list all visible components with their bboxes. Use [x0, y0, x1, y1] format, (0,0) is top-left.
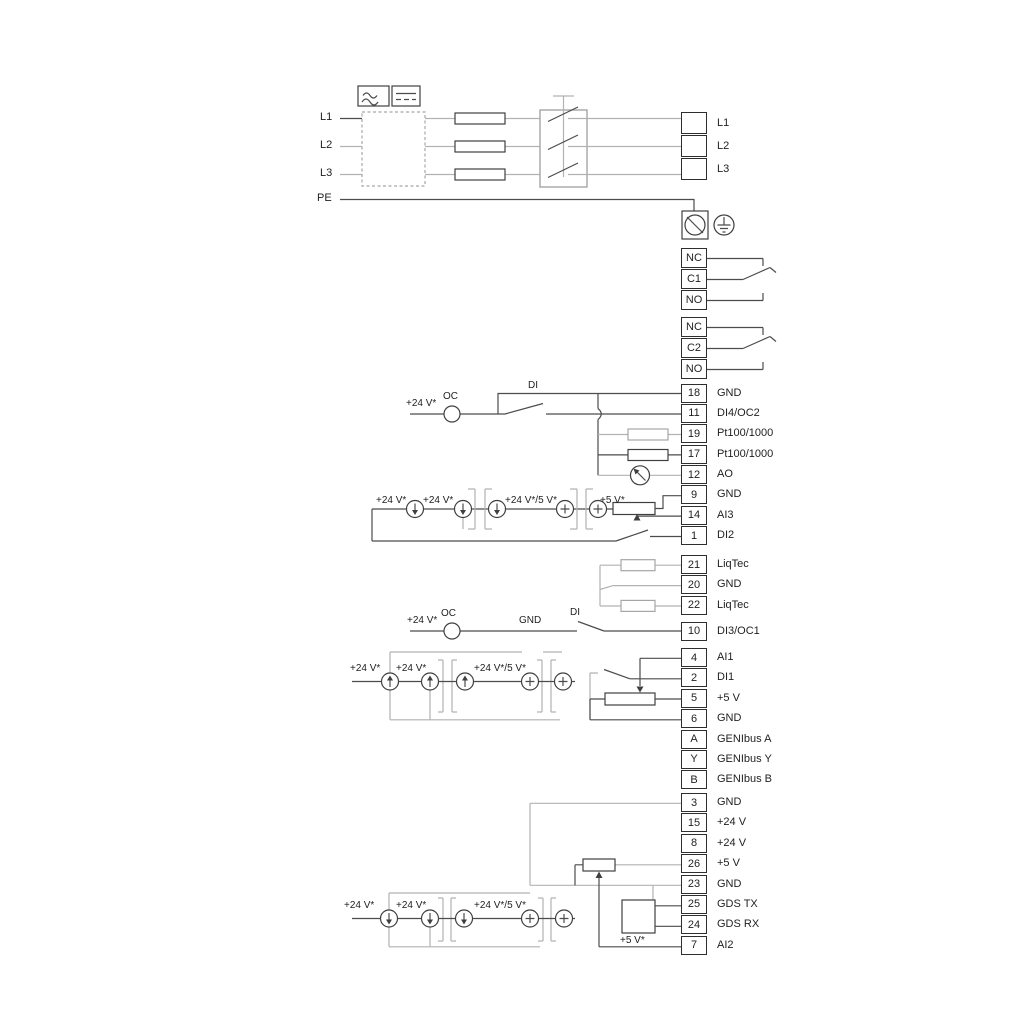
- terminal-label: GND: [717, 575, 741, 594]
- current-source-icon: [422, 673, 439, 690]
- terminal-row: 23 GND: [681, 875, 759, 895]
- terminal-number: A: [681, 730, 707, 749]
- terminal-row: 18 GND: [681, 384, 773, 404]
- terminal-number: 19: [681, 424, 707, 443]
- terminal-label: DI2: [717, 526, 734, 545]
- terminal-number: NC: [681, 317, 707, 337]
- potentiometer-icon: [583, 859, 615, 871]
- terminal-number: 25: [681, 895, 707, 914]
- terminal-label: +5 V: [717, 854, 740, 873]
- power-input-label: L2: [320, 139, 332, 151]
- current-source-icon: [381, 910, 398, 927]
- terminal-number: C1: [681, 269, 707, 289]
- terminal-number: 20: [681, 575, 707, 594]
- current-source-icon: [455, 501, 472, 518]
- terminal-number: 2: [681, 668, 707, 687]
- terminal-number: 4: [681, 648, 707, 667]
- power-input-label: PE: [317, 192, 332, 204]
- terminal-row: 15 +24 V: [681, 813, 759, 833]
- current-source-icon: [522, 673, 539, 690]
- current-source-icon: [382, 673, 399, 690]
- fuse-icon: [455, 113, 505, 124]
- power-input-label: L1: [320, 111, 332, 123]
- terminal-row: C2: [681, 338, 717, 359]
- relay-changeover-contact-icon: [707, 328, 776, 370]
- terminal-label: Pt100/1000: [717, 445, 773, 464]
- terminal-row: 20 GND: [681, 575, 749, 595]
- terminal-row: 2 DI1: [681, 668, 772, 688]
- terminal-label: AI2: [717, 936, 734, 955]
- terminal-number: 7: [681, 936, 707, 955]
- terminal-number: 9: [681, 485, 707, 504]
- open-collector-icon: [444, 623, 460, 639]
- wiring-diagram-canvas: [0, 0, 1024, 1024]
- terminal-number: 21: [681, 555, 707, 574]
- current-source-icon: [407, 501, 424, 518]
- wire-label-24v: +24 V*: [396, 900, 426, 911]
- terminal-strip-mid: 4 AI1 2 DI1 5 +5 V 6 GND A GENIbus A Y G…: [681, 648, 772, 791]
- terminal-number: [681, 158, 707, 180]
- terminal-label: +24 V: [717, 834, 746, 853]
- terminal-number: 8: [681, 834, 707, 853]
- terminal-row: 4 AI1: [681, 648, 772, 668]
- fuses: [425, 113, 540, 180]
- relay-changeover-contact-icon: [707, 259, 776, 301]
- terminal-label: +24 V: [717, 813, 746, 832]
- terminal-row: NC: [681, 248, 717, 269]
- wire-label-di: DI: [528, 380, 538, 391]
- terminal-number: 11: [681, 404, 707, 423]
- gds-sensor-box-icon: [622, 900, 655, 933]
- terminal-label: LiqTec: [717, 555, 749, 574]
- terminal-label: GENIbus B: [717, 770, 772, 789]
- terminal-row: 11 DI4/OC2: [681, 404, 773, 424]
- terminal-row: 14 AI3: [681, 506, 773, 526]
- potentiometer-icon: [605, 693, 655, 705]
- wire-label-5v: +5 V*: [600, 495, 625, 506]
- wiring-diagram: L1 L2 L3 PE L1 L2 L3 NC C1 NO NC C2 NO 1…: [0, 0, 1024, 1024]
- power-input-label: L3: [320, 167, 332, 179]
- wire-label-24v: +24 V*: [407, 615, 437, 626]
- emc-filter-box: [362, 112, 425, 186]
- relay1-block: NC C1 NO: [681, 248, 717, 311]
- terminal-row: Y GENIbus Y: [681, 750, 772, 770]
- terminal-row: 21 LiqTec: [681, 555, 749, 575]
- terminal-number: 14: [681, 506, 707, 525]
- terminal-row: 19 Pt100/1000: [681, 424, 773, 444]
- terminal-row: 3 GND: [681, 793, 759, 813]
- terminal-label: AI3: [717, 506, 734, 525]
- terminal-label: LiqTec: [717, 596, 749, 615]
- terminal-number: 6: [681, 709, 707, 728]
- terminal-row: C1: [681, 269, 717, 290]
- terminal-number: Y: [681, 750, 707, 769]
- wire-label-gnd: GND: [519, 615, 541, 626]
- current-source-icon: [456, 910, 473, 927]
- terminal-row: 10 DI3/OC1: [681, 622, 760, 642]
- terminal-label: DI1: [717, 668, 734, 687]
- terminal-row: 7 AI2: [681, 936, 759, 956]
- terminal-label: GND: [717, 384, 741, 403]
- terminal-row: 8 +24 V: [681, 834, 759, 854]
- power-input-wiring: [340, 112, 694, 211]
- wire-label-24v: +24 V*: [344, 900, 374, 911]
- terminal-number: NO: [681, 359, 707, 379]
- terminal-label: GND: [717, 485, 741, 504]
- digital-input-switch-icon: [604, 670, 681, 679]
- current-source-icon: [557, 501, 574, 518]
- terminal-number: 17: [681, 445, 707, 464]
- terminal-number: NO: [681, 290, 707, 310]
- terminal-number: 10: [681, 622, 707, 641]
- terminal-number: 24: [681, 915, 707, 934]
- wire-label-24v: +24 V*: [423, 495, 453, 506]
- liqtec-sensor-wiring: [600, 560, 681, 612]
- relay2-block: NC C2 NO: [681, 317, 717, 380]
- fuse-icon: [455, 141, 505, 152]
- wire-label-oc: OC: [443, 391, 458, 402]
- wire-label-5v: +5 V*: [620, 935, 645, 946]
- terminal-label: L2: [717, 135, 729, 157]
- terminal-row: 25 GDS TX: [681, 895, 759, 915]
- fuse-icon: [455, 169, 505, 180]
- wire-label-24v: +24 V*: [396, 663, 426, 674]
- terminal-number: [681, 112, 707, 134]
- terminal-label: Pt100/1000: [717, 424, 773, 443]
- pt100-sensors: [598, 429, 681, 461]
- di3-oc1-wiring: [410, 622, 681, 640]
- terminal-row: 24 GDS RX: [681, 915, 759, 935]
- terminal-row: 12 AO: [681, 465, 773, 485]
- terminal-row: NO: [681, 290, 717, 311]
- resistor-icon: [628, 450, 668, 461]
- terminal-row: A GENIbus A: [681, 730, 772, 750]
- disconnect-switch-icon: [540, 96, 681, 187]
- terminal-number: 18: [681, 384, 707, 403]
- terminal-row: L2: [681, 135, 729, 158]
- terminal-number: 15: [681, 813, 707, 832]
- terminal-number: 12: [681, 465, 707, 484]
- terminal-label: L1: [717, 112, 729, 134]
- wire-label-24v: +24 V*: [406, 398, 436, 409]
- terminal-row: NC: [681, 317, 717, 338]
- terminal-row: L1: [681, 112, 729, 135]
- wire-label-24v: +24 V*: [376, 495, 406, 506]
- terminal-number: 5: [681, 689, 707, 708]
- wire-label-oc: OC: [441, 608, 456, 619]
- terminal-label: GENIbus A: [717, 730, 771, 749]
- resistor-icon: [621, 600, 655, 611]
- power-output-block: L1 L2 L3: [681, 112, 729, 180]
- terminal-number: 3: [681, 793, 707, 812]
- wire-label-24v-5v: +24 V*/5 V*: [474, 900, 526, 911]
- terminal-strip-bottom: 3 GND 15 +24 V 8 +24 V 26 +5 V 23 GND 25…: [681, 793, 759, 956]
- terminal-number: [681, 135, 707, 157]
- terminal-strip-liqtec: 21 LiqTec 20 GND 22 LiqTec: [681, 555, 749, 616]
- terminal-label: GND: [717, 875, 741, 894]
- terminal-label: GND: [717, 709, 741, 728]
- ac-symbol-icon: [358, 86, 389, 106]
- terminal-row: 22 LiqTec: [681, 596, 749, 616]
- wire-label-24v: +24 V*: [350, 663, 380, 674]
- terminal-number: B: [681, 770, 707, 789]
- terminal-label: DI3/OC1: [717, 622, 760, 641]
- ai2-input-group: [352, 803, 681, 947]
- terminal-row: 17 Pt100/1000: [681, 445, 773, 465]
- current-source-icon: [556, 910, 573, 927]
- earth-ground-icon: [714, 215, 734, 235]
- terminal-strip-a: 18 GND 11 DI4/OC2 19 Pt100/1000 17 Pt100…: [681, 384, 773, 547]
- terminal-strip-di3: 10 DI3/OC1: [681, 622, 760, 642]
- terminal-number: 26: [681, 854, 707, 873]
- analog-output-meter-icon: [598, 466, 681, 485]
- resistor-icon: [628, 429, 668, 440]
- current-source-icon: [489, 501, 506, 518]
- current-source-icon: [555, 673, 572, 690]
- terminal-number: C2: [681, 338, 707, 358]
- current-source-icon: [422, 910, 439, 927]
- terminal-row: 9 GND: [681, 485, 773, 505]
- terminal-label: GDS TX: [717, 895, 758, 914]
- wire-label-24v-5v: +24 V*/5 V*: [474, 663, 526, 674]
- terminal-label: GENIbus Y: [717, 750, 772, 769]
- terminal-row: L3: [681, 158, 729, 181]
- wire-label-24v-5v: +24 V*/5 V*: [505, 495, 557, 506]
- open-collector-icon: [444, 406, 460, 422]
- terminal-row: NO: [681, 359, 717, 380]
- terminal-number: NC: [681, 248, 707, 268]
- terminal-row: B GENIbus B: [681, 770, 772, 790]
- terminal-label: DI4/OC2: [717, 404, 760, 423]
- resistor-icon: [621, 560, 655, 571]
- terminal-label: L3: [717, 158, 729, 180]
- wire-label-di: DI: [570, 607, 580, 618]
- dc-symbol-icon: [392, 86, 420, 106]
- terminal-label: GDS RX: [717, 915, 759, 934]
- terminal-number: 22: [681, 596, 707, 615]
- current-source-icon: [457, 673, 474, 690]
- terminal-number: 1: [681, 526, 707, 545]
- pe-screw-terminal-icon: [682, 211, 708, 239]
- terminal-row: 26 +5 V: [681, 854, 759, 874]
- terminal-number: 23: [681, 875, 707, 894]
- terminal-row: 6 GND: [681, 709, 772, 729]
- terminal-label: GND: [717, 793, 741, 812]
- terminal-row: 1 DI2: [681, 526, 773, 546]
- current-source-icon: [522, 910, 539, 927]
- terminal-label: +5 V: [717, 689, 740, 708]
- terminal-label: AI1: [717, 648, 734, 667]
- terminal-label: AO: [717, 465, 733, 484]
- terminal-row: 5 +5 V: [681, 689, 772, 709]
